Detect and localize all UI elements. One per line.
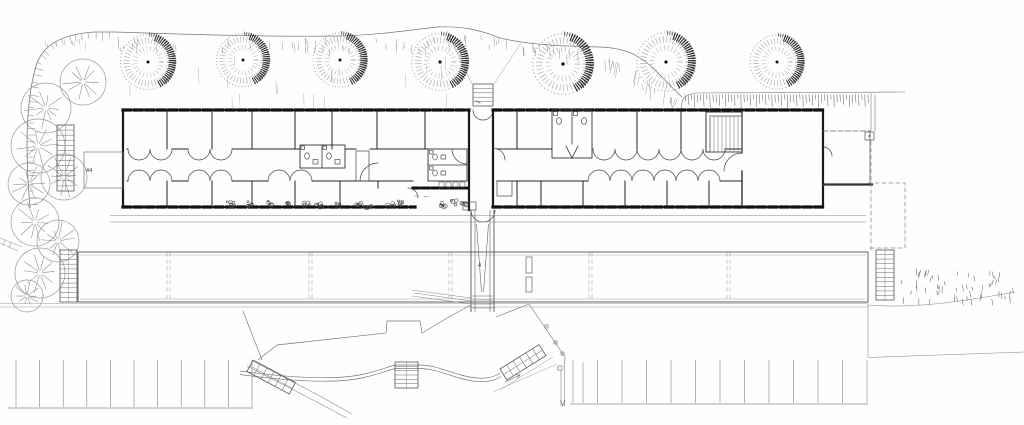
level-marks <box>415 196 428 197</box>
east-terrace-stair <box>876 250 894 300</box>
grass-verge-ticks <box>685 95 868 109</box>
building-right-wing <box>493 110 823 207</box>
slope-ticks-b <box>130 57 447 110</box>
line-tree <box>11 198 59 246</box>
bollard <box>545 325 548 328</box>
floor-plan-canvas: 44 4 <box>0 0 1024 425</box>
grass-verge-outline <box>682 92 905 110</box>
verge-lower-curve <box>868 292 1015 306</box>
level-annotation: 44 <box>86 168 92 174</box>
hardscape <box>0 210 1024 418</box>
hillside-stair <box>473 84 493 106</box>
wc-block <box>300 145 345 168</box>
ramp-annotation: 4 <box>478 263 481 269</box>
road-edge-right <box>868 304 1024 358</box>
plaza-west-stair <box>247 360 295 394</box>
room-partitions <box>167 110 425 207</box>
breezeway <box>471 101 495 222</box>
parking-lot-right <box>570 360 868 404</box>
south-double-door <box>471 210 495 222</box>
corridor-walls <box>497 149 742 181</box>
room-partitions <box>517 110 709 207</box>
stippled-tree <box>120 34 175 89</box>
wc-block <box>552 110 592 158</box>
dashed-pad-outline <box>868 183 905 248</box>
door-swings <box>493 148 742 171</box>
north-double-door <box>473 110 493 120</box>
grass-tufts <box>901 269 1013 306</box>
site-plan-svg: 44 4 <box>0 0 1024 425</box>
west-upper-stair <box>57 125 74 191</box>
line-tree <box>60 59 106 105</box>
terrace-joints <box>167 253 730 302</box>
lower-terrace-inner <box>80 255 866 299</box>
stippled-tree <box>750 35 804 89</box>
building <box>84 101 905 250</box>
stippled-tree <box>533 34 593 94</box>
lower-terrace <box>78 252 868 302</box>
stippled-tree <box>217 34 270 87</box>
west-lower-stair <box>60 250 77 302</box>
stair-room <box>706 112 742 152</box>
stippled-tree <box>313 33 367 87</box>
stippled-tree <box>412 34 469 91</box>
planter-boxes <box>439 182 476 210</box>
bollard <box>558 366 562 370</box>
central-ramp <box>412 210 494 312</box>
plaza-paths <box>0 238 583 418</box>
line-tree <box>15 248 65 298</box>
generated-landscape <box>8 32 1013 408</box>
building-left-wing <box>123 110 476 210</box>
benches <box>526 257 532 292</box>
road-edge <box>0 304 868 308</box>
grass-verge-end <box>871 93 875 131</box>
interior-stair <box>710 116 742 152</box>
annex <box>823 131 905 250</box>
door-swings <box>360 149 467 198</box>
slope-ridge-contour <box>115 27 682 97</box>
level-mark <box>476 101 480 103</box>
shaft <box>356 151 369 181</box>
parking-lot-left <box>8 360 253 408</box>
corridor-walls <box>127 149 428 181</box>
plaza-east-stair <box>500 345 546 380</box>
wc-block <box>428 149 467 181</box>
door-swings <box>128 149 312 181</box>
closet <box>497 181 512 196</box>
door-swings <box>588 149 725 181</box>
plaza-center-stair <box>395 362 418 388</box>
